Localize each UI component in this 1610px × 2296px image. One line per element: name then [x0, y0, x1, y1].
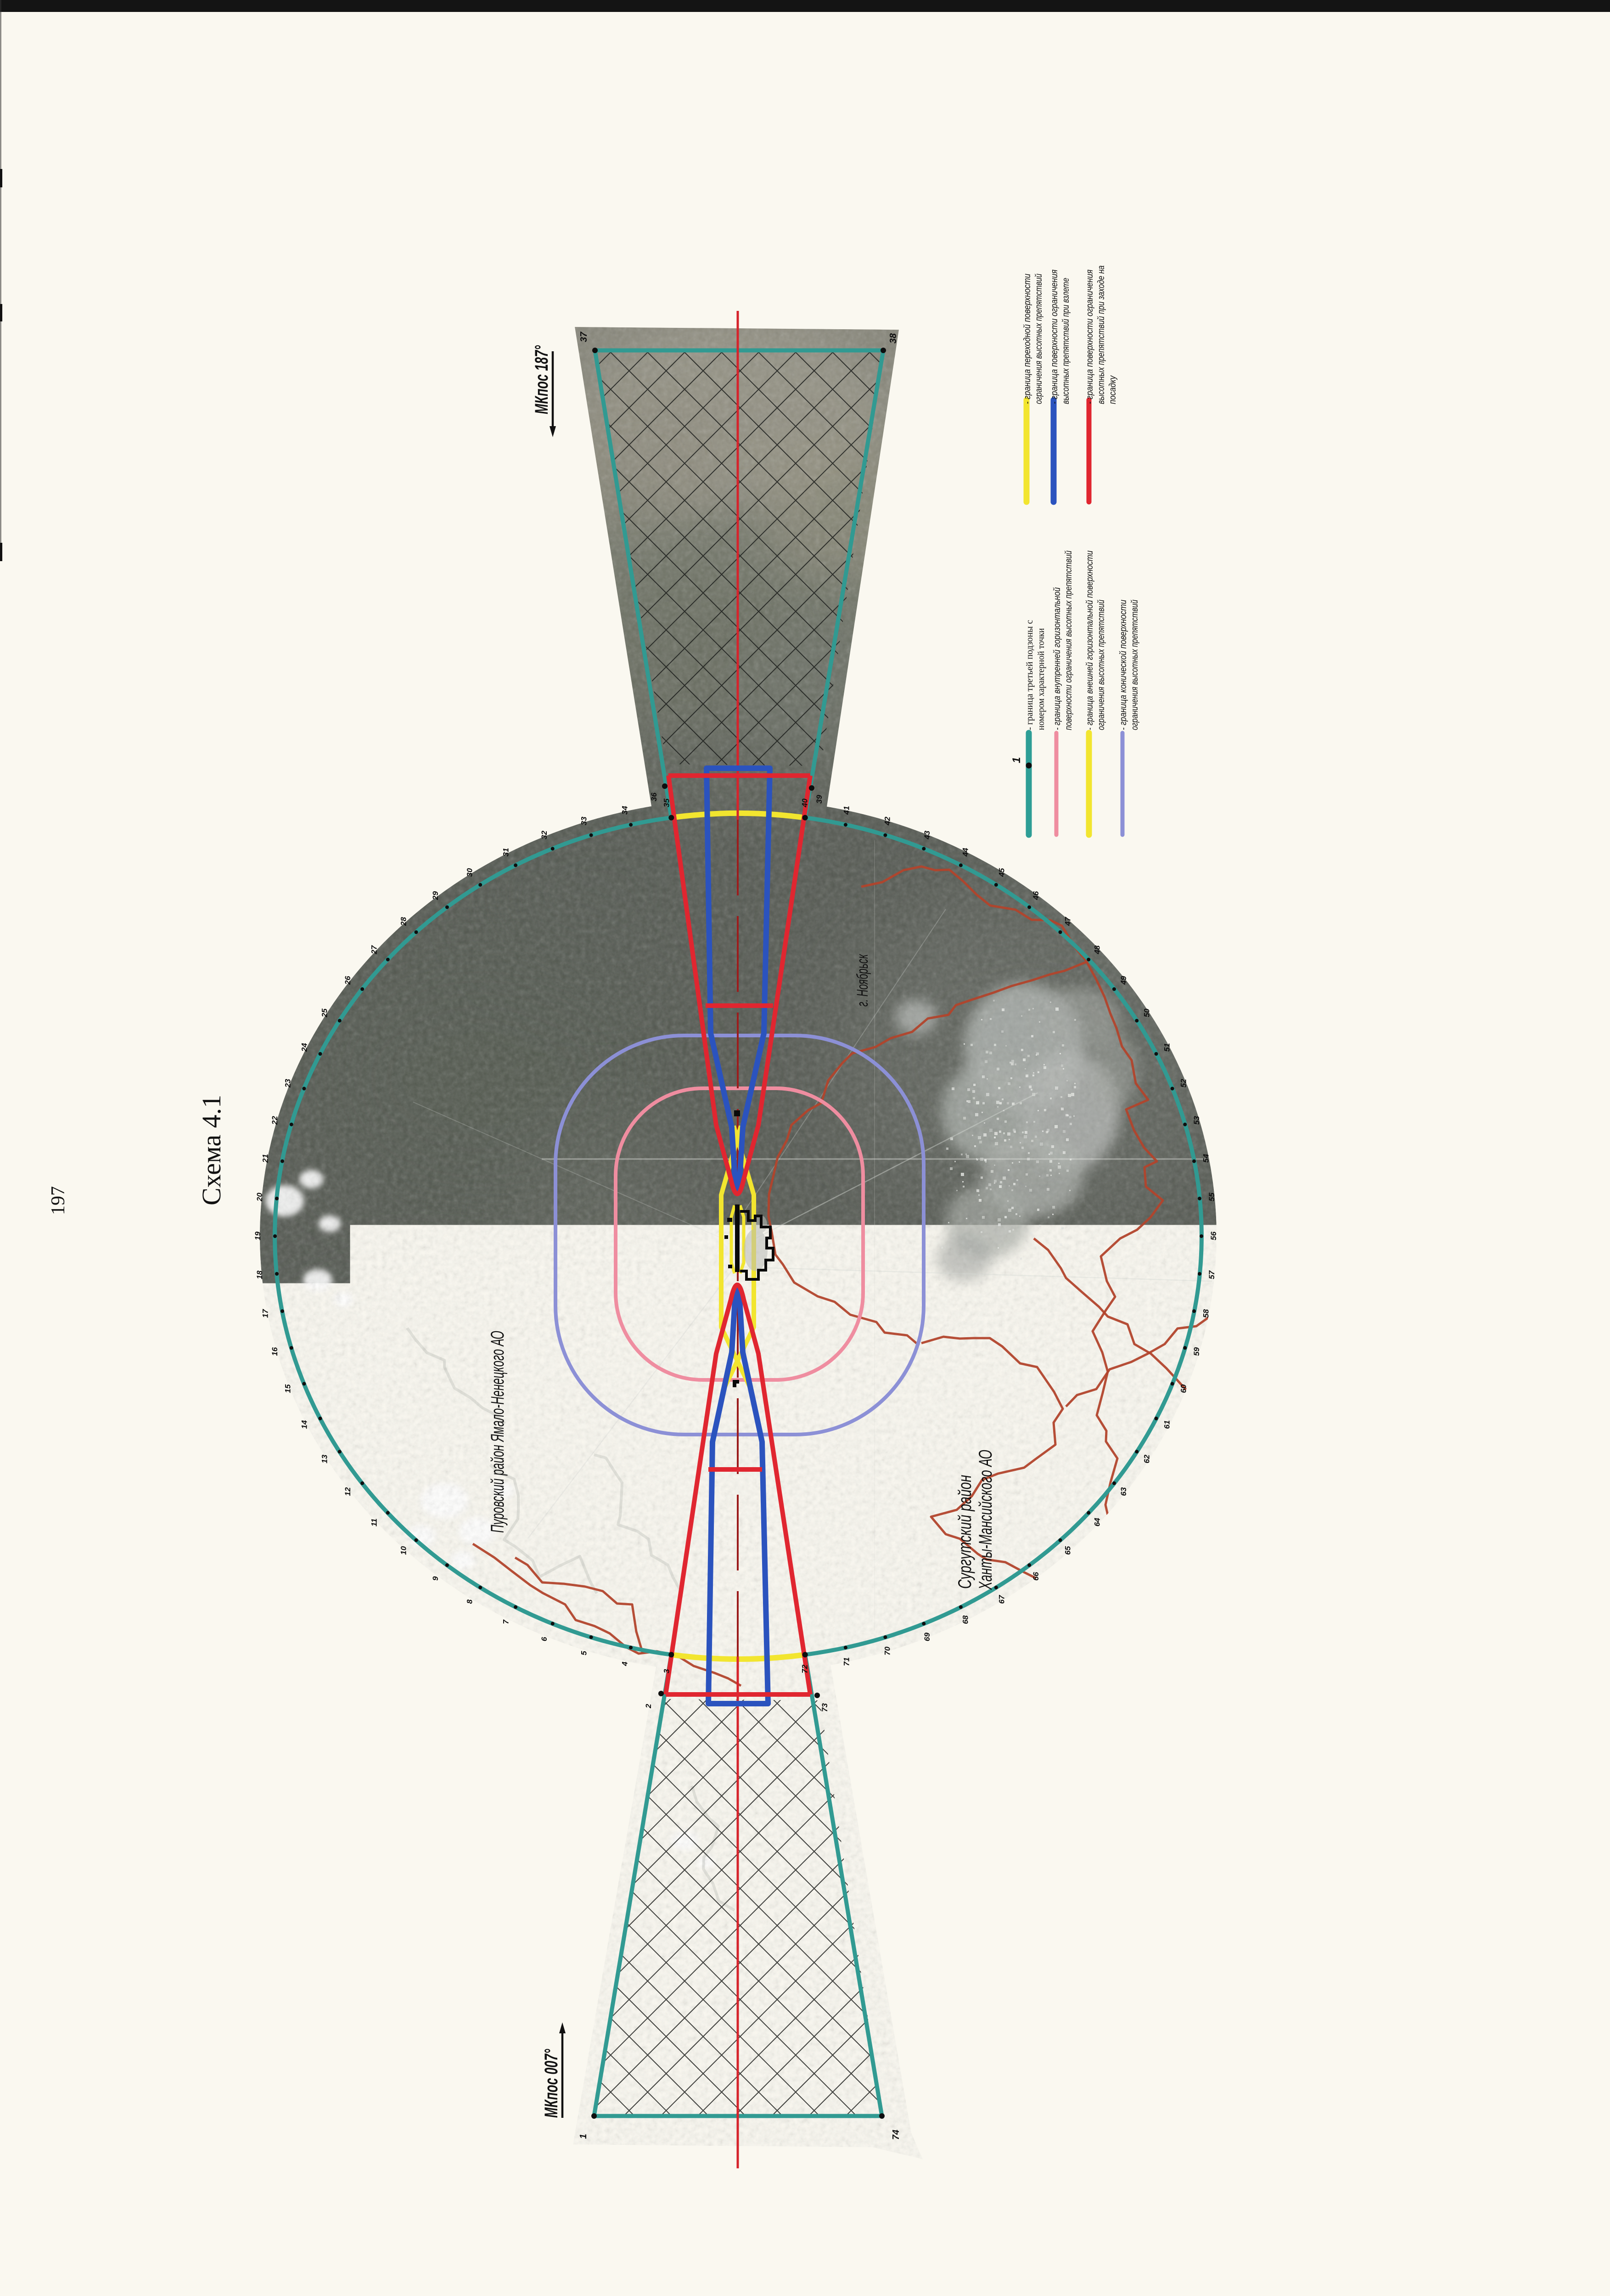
svg-text:73: 73	[820, 1703, 829, 1712]
svg-text:36: 36	[650, 793, 658, 801]
svg-text:- граница переходной поверхнос: - граница переходной поверхности	[1022, 274, 1032, 404]
svg-text:- граница третьей подзоны с: - граница третьей подзоны с	[1025, 620, 1035, 730]
svg-text:30: 30	[465, 868, 474, 877]
svg-text:12: 12	[343, 1487, 352, 1496]
svg-text:17: 17	[261, 1309, 270, 1318]
svg-text:44: 44	[961, 848, 970, 857]
svg-text:52: 52	[1179, 1079, 1188, 1087]
svg-text:22: 22	[270, 1116, 279, 1125]
svg-text:19: 19	[253, 1232, 262, 1240]
svg-text:71: 71	[842, 1657, 851, 1666]
svg-text:26: 26	[343, 976, 352, 985]
svg-text:4: 4	[621, 1661, 629, 1666]
svg-text:68: 68	[961, 1615, 970, 1624]
svg-text:28: 28	[399, 917, 408, 926]
svg-text:50: 50	[1143, 1008, 1151, 1017]
svg-text:г. Ноябрьск: г. Ноябрьск	[854, 954, 871, 1007]
svg-text:6: 6	[540, 1637, 549, 1641]
svg-text:10: 10	[399, 1546, 408, 1555]
svg-text:Сургутский район: Сургутский район	[955, 1475, 975, 1589]
svg-text:64: 64	[1093, 1518, 1101, 1526]
svg-text:посадку: посадку	[1108, 375, 1118, 404]
svg-text:60: 60	[1179, 1384, 1188, 1393]
svg-text:МКпос 007°: МКпос 007°	[541, 2048, 561, 2118]
svg-text:- граница внутренней горизонта: - граница внутренней горизонтальной	[1052, 587, 1062, 730]
svg-text:1: 1	[578, 2134, 589, 2139]
svg-text:65: 65	[1064, 1546, 1072, 1555]
svg-text:9: 9	[431, 1576, 440, 1581]
svg-text:66: 66	[1032, 1572, 1040, 1581]
svg-text:14: 14	[300, 1420, 309, 1429]
svg-text:13: 13	[320, 1454, 329, 1463]
svg-text:41: 41	[842, 806, 851, 815]
svg-text:49: 49	[1119, 976, 1128, 985]
svg-text:74: 74	[891, 2130, 901, 2140]
svg-text:Ханты-Мансийского АО: Ханты-Мансийского АО	[976, 1450, 996, 1590]
svg-text:23: 23	[283, 1079, 292, 1088]
svg-text:58: 58	[1202, 1309, 1211, 1318]
svg-text:47: 47	[1064, 917, 1072, 926]
svg-text:45: 45	[998, 868, 1006, 877]
svg-text:37: 37	[579, 332, 589, 342]
svg-text:ограничения высотных препятств: ограничения высотных препятствий	[1034, 274, 1044, 404]
svg-text:25: 25	[320, 1008, 329, 1018]
svg-text:39: 39	[815, 795, 824, 804]
svg-text:31: 31	[502, 848, 510, 856]
svg-text:21: 21	[261, 1154, 270, 1163]
svg-text:59: 59	[1192, 1347, 1201, 1356]
svg-text:- граница конической поверхнос: - граница конической поверхности	[1118, 600, 1128, 730]
svg-text:- граница внешней горизонтальн: - граница внешней горизонтальной поверхн…	[1085, 551, 1095, 730]
svg-text:1: 1	[1010, 757, 1023, 763]
svg-text:15: 15	[283, 1384, 292, 1393]
svg-text:42: 42	[883, 816, 892, 826]
svg-text:61: 61	[1162, 1420, 1171, 1429]
svg-text:7: 7	[502, 1619, 510, 1624]
svg-text:номером характерной точки: номером характерной точки	[1036, 628, 1046, 730]
svg-text:57: 57	[1207, 1270, 1216, 1279]
svg-text:- граница поверхности ограниче: - граница поверхности ограничения	[1049, 270, 1060, 404]
svg-text:63: 63	[1119, 1487, 1128, 1496]
svg-text:197: 197	[48, 1186, 69, 1215]
svg-text:24: 24	[300, 1043, 309, 1052]
svg-text:Схема 4.1: Схема 4.1	[196, 1095, 226, 1205]
svg-text:54: 54	[1202, 1154, 1211, 1163]
svg-text:32: 32	[540, 830, 549, 839]
svg-text:46: 46	[1032, 891, 1040, 900]
svg-text:55: 55	[1207, 1193, 1216, 1201]
svg-text:высотных препятствий при взлет: высотных препятствий при взлете	[1061, 278, 1071, 404]
svg-text:11: 11	[370, 1519, 379, 1527]
svg-text:62: 62	[1143, 1454, 1151, 1463]
svg-text:8: 8	[465, 1599, 474, 1604]
svg-text:38: 38	[888, 333, 898, 343]
svg-text:56: 56	[1209, 1232, 1218, 1240]
svg-text:70: 70	[883, 1646, 892, 1655]
svg-text:43: 43	[923, 830, 931, 839]
svg-text:67: 67	[998, 1594, 1006, 1604]
svg-text:35: 35	[662, 799, 671, 807]
svg-text:27: 27	[370, 945, 379, 954]
svg-text:51: 51	[1162, 1043, 1171, 1052]
svg-text:- граница поверхности ограниче: - граница поверхности ограничения	[1085, 270, 1095, 404]
svg-text:72: 72	[800, 1665, 809, 1673]
svg-text:5: 5	[580, 1651, 589, 1655]
svg-text:поверхности ограничения высотн: поверхности ограничения высотных препятс…	[1064, 551, 1074, 730]
svg-text:ограничения высотных препятств: ограничения высотных препятствий	[1130, 600, 1140, 730]
svg-text:3: 3	[662, 1669, 671, 1673]
svg-text:16: 16	[270, 1347, 279, 1356]
svg-text:2: 2	[644, 1704, 653, 1709]
svg-text:29: 29	[431, 891, 440, 900]
svg-text:53: 53	[1192, 1116, 1201, 1125]
svg-text:48: 48	[1093, 945, 1101, 954]
svg-text:33: 33	[580, 816, 589, 825]
svg-text:МКпос 187°: МКпос 187°	[532, 345, 552, 414]
svg-text:высотных препятствий при заход: высотных препятствий при заходе на	[1096, 265, 1106, 404]
svg-text:69: 69	[923, 1632, 931, 1641]
svg-text:20: 20	[255, 1193, 264, 1202]
svg-text:Пуровский район Ямало-Ненецког: Пуровский район Ямало-Ненецкого АО	[488, 1331, 508, 1533]
svg-text:18: 18	[255, 1270, 264, 1279]
svg-text:40: 40	[800, 799, 809, 808]
svg-text:ограничения высотных препятств: ограничения высотных препятствий	[1096, 600, 1106, 730]
svg-text:34: 34	[621, 806, 629, 815]
